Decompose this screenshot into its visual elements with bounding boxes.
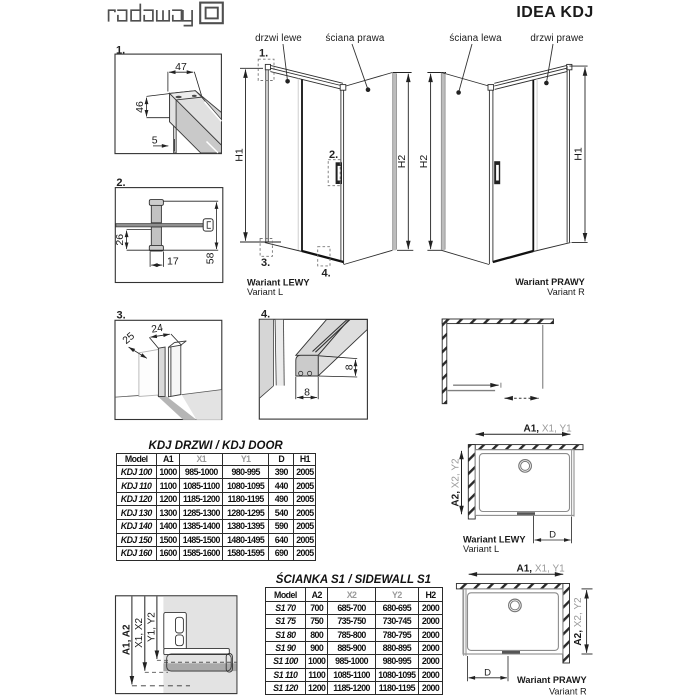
svg-text:Wariant LEWY: Wariant LEWY (463, 534, 525, 544)
svg-text:IDEA KDJ: IDEA KDJ (516, 4, 593, 21)
svg-text:2.: 2. (329, 149, 338, 161)
svg-text:Wariant PRAWY: Wariant PRAWY (517, 675, 587, 685)
svg-text:A1, X1, Y1: A1, X1, Y1 (524, 423, 573, 434)
svg-text:ściana lewa: ściana lewa (449, 33, 502, 44)
svg-text:H2: H2 (396, 155, 408, 169)
svg-text:58: 58 (204, 252, 216, 264)
svg-text:A2, X2, Y2: A2, X2, Y2 (450, 458, 461, 507)
svg-text:2.: 2. (116, 177, 125, 189)
svg-text:drzwi lewe: drzwi lewe (255, 33, 302, 44)
svg-text:26: 26 (114, 234, 126, 246)
svg-text:4.: 4. (322, 267, 331, 279)
svg-text:1.: 1. (259, 47, 268, 59)
svg-text:5: 5 (152, 135, 158, 147)
svg-text:Variant L: Variant L (463, 544, 499, 554)
svg-text:Variant R: Variant R (549, 686, 587, 696)
svg-text:Variant L: Variant L (247, 287, 283, 297)
svg-text:Y1, Y2: Y1, Y2 (146, 612, 157, 642)
svg-text:X1, X2: X1, X2 (134, 617, 145, 647)
svg-text:Wariant LEWY: Wariant LEWY (247, 278, 309, 288)
svg-text:A1, X1, Y1: A1, X1, Y1 (517, 563, 566, 574)
svg-text:H2: H2 (418, 155, 430, 169)
svg-text:H1: H1 (234, 148, 246, 162)
svg-text:D: D (549, 530, 556, 541)
svg-text:H1: H1 (573, 147, 585, 161)
svg-text:drzwi prawe: drzwi prawe (530, 33, 584, 44)
svg-text:47: 47 (175, 61, 187, 73)
svg-text:3.: 3. (117, 309, 126, 321)
svg-text:3.: 3. (261, 257, 270, 269)
svg-text:A1, A2: A1, A2 (122, 624, 133, 655)
svg-text:46: 46 (134, 101, 146, 113)
svg-text:ściana prawa: ściana prawa (326, 33, 385, 44)
svg-text:24: 24 (150, 322, 164, 336)
svg-text:D: D (484, 667, 491, 678)
svg-text:8: 8 (343, 364, 355, 370)
svg-text:Variant R: Variant R (547, 287, 585, 297)
svg-text:17: 17 (167, 256, 179, 268)
svg-text:4.: 4. (261, 308, 270, 320)
svg-text:8: 8 (304, 386, 310, 398)
svg-text:Wariant PRAWY: Wariant PRAWY (515, 277, 585, 287)
svg-text:A2, X2, Y2: A2, X2, Y2 (573, 597, 584, 646)
